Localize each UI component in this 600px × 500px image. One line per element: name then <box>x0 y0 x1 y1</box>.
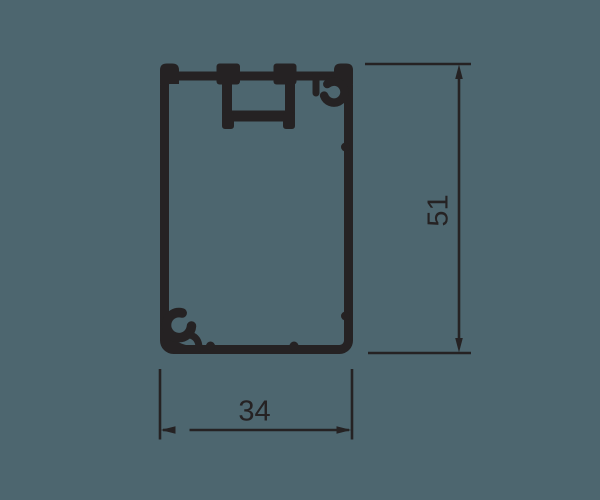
width-dimension-label: 34 <box>238 396 270 428</box>
arrowhead-down-icon <box>455 338 463 353</box>
profile-cross-section <box>160 64 353 351</box>
arrowhead-right-icon <box>337 426 352 433</box>
profile-top-left-lip <box>160 64 179 85</box>
profile-technical-drawing: 51 34 <box>0 0 600 500</box>
height-dimension-label: 51 <box>423 194 455 226</box>
top-right-screw-boss <box>324 82 344 103</box>
bottom-wall-nub-right <box>290 342 299 351</box>
channel-left-wall <box>222 80 232 115</box>
channel-right-foot <box>283 112 295 129</box>
arrowhead-up-icon <box>455 65 463 80</box>
height-dimension: 51 <box>365 64 471 353</box>
bottom-wall-nub-left <box>206 342 215 351</box>
channel-right-wall <box>285 80 295 115</box>
right-wall-nub-upper <box>341 143 350 152</box>
channel-left-foot <box>222 112 234 129</box>
right-wall-nub-lower <box>341 312 350 321</box>
arrowhead-left-icon <box>161 426 176 433</box>
drawing-canvas: 51 34 <box>0 0 600 500</box>
width-dimension: 34 <box>160 369 352 440</box>
